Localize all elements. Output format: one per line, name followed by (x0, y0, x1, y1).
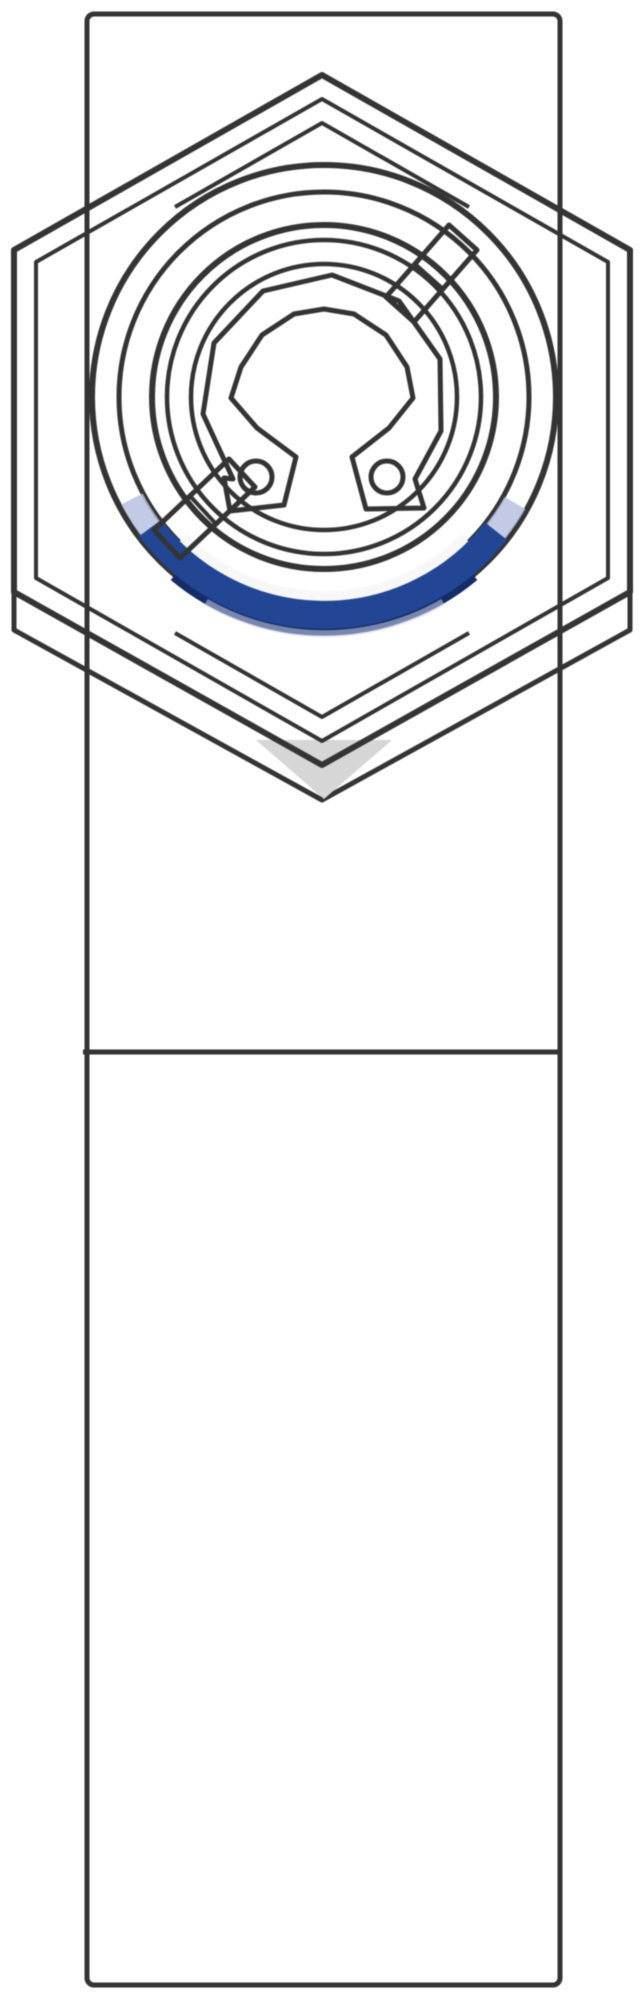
background (0, 0, 640, 1995)
product-image (0, 0, 640, 1995)
fitting-illustration (0, 0, 640, 1995)
blue-seal-fade-right (496, 503, 515, 531)
blue-seal-fade-left (132, 499, 150, 528)
